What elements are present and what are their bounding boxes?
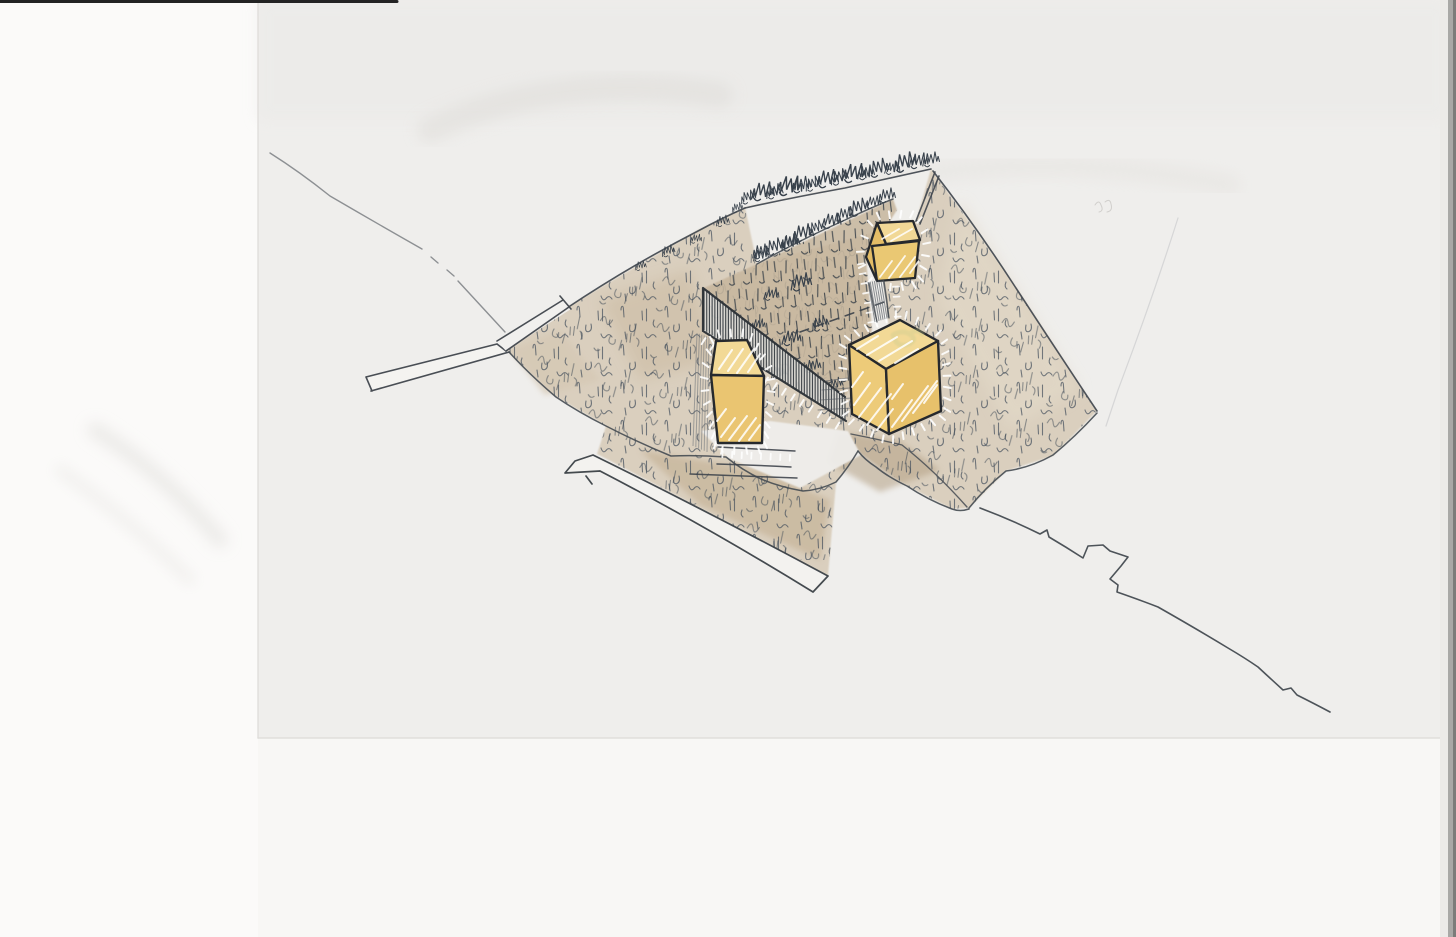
left-margin-paper xyxy=(0,0,258,937)
generated-sketch-layers xyxy=(0,0,1456,937)
building-west-front-face xyxy=(711,375,764,443)
scan-right-light-band xyxy=(1440,0,1448,937)
tracing-paper-top-shade xyxy=(258,0,1448,120)
scanned-sketch-page xyxy=(0,0,1456,937)
site-sketch-canvas xyxy=(0,0,1456,937)
scan-right-gray-band xyxy=(1448,0,1453,937)
